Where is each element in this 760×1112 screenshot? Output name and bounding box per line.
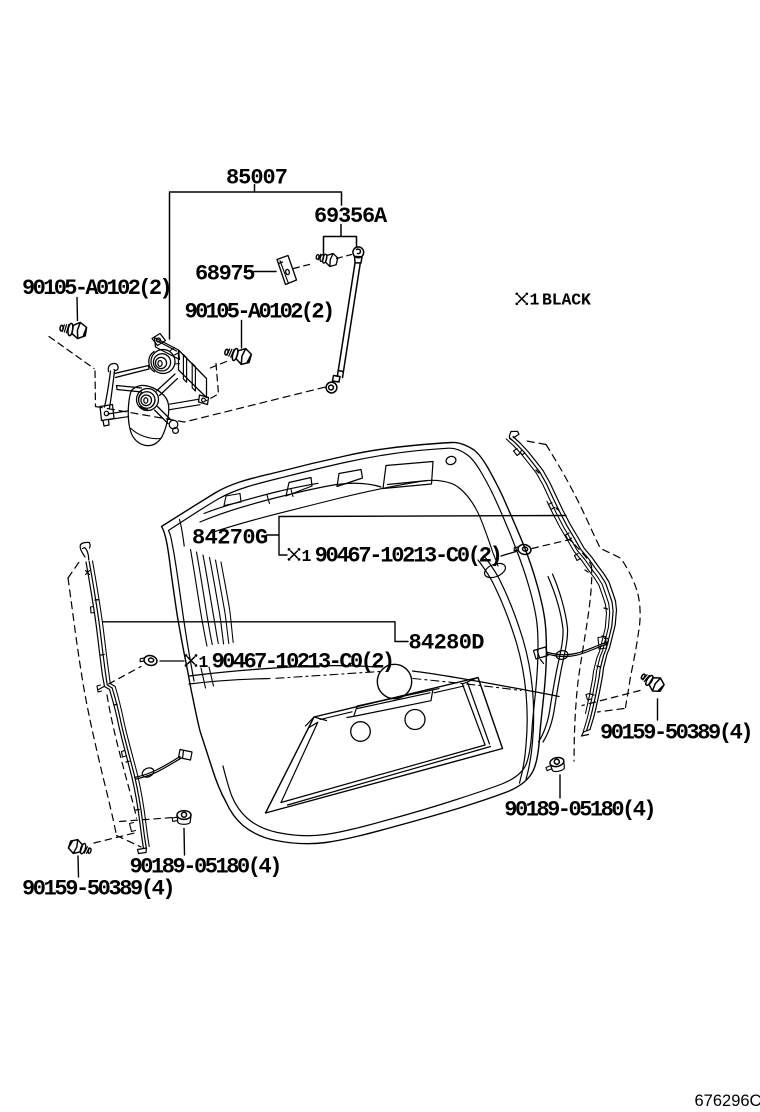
svg-text:90105-A0102(2): 90105-A0102(2): [185, 300, 333, 325]
svg-text:90467-10213-C0(2): 90467-10213-C0(2): [315, 543, 501, 568]
svg-text:90159-50389(4): 90159-50389(4): [22, 877, 173, 902]
svg-text:90159-50389(4): 90159-50389(4): [600, 720, 751, 745]
svg-text:1: 1: [302, 547, 312, 566]
svg-text:84280D: 84280D: [409, 631, 485, 656]
svg-text:85007: 85007: [226, 166, 287, 191]
svg-text:68975: 68975: [195, 262, 255, 287]
svg-text:1: 1: [530, 291, 540, 310]
svg-text:90189-05180(4): 90189-05180(4): [504, 798, 654, 823]
svg-text:90105-A0102(2): 90105-A0102(2): [22, 276, 170, 301]
svg-text:69356A: 69356A: [314, 204, 388, 229]
svg-text:1: 1: [199, 653, 209, 672]
svg-text:84270G: 84270G: [192, 526, 268, 551]
svg-text:BLACK: BLACK: [542, 291, 591, 310]
svg-text:676296C: 676296C: [695, 1092, 760, 1110]
